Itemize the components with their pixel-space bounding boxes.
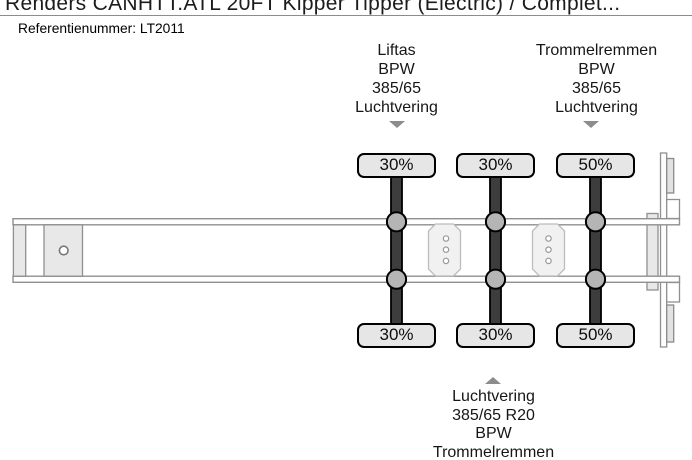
axle-bar-2 (490, 164, 501, 336)
annotation-line: Trommelremmen (497, 41, 692, 60)
chevron-down-icon (583, 121, 599, 128)
tire-load-badge-bottom-3: 50% (556, 323, 635, 348)
suspension-mount (387, 212, 406, 231)
annotation-line: BPW (497, 60, 692, 79)
axle-bar-3 (590, 164, 601, 336)
cross-member-2 (533, 224, 565, 276)
front-end-cap (13, 225, 25, 276)
suspension-mount (586, 212, 605, 231)
suspension-mount (586, 270, 605, 289)
chevron-up-icon (485, 377, 501, 384)
annotation-drum-brakes: Trommelremmen BPW 385/65 Luchtvering (497, 41, 692, 117)
rear-bracket-top (667, 200, 680, 219)
cross-member-1 (429, 224, 461, 276)
annotation-line: Liftas (297, 41, 497, 60)
chassis-rail-bottom (13, 276, 680, 282)
rear-lamp-top (667, 159, 674, 194)
chevron-down-icon (389, 121, 405, 128)
suspension-mount (486, 270, 505, 289)
axle-bar-1 (391, 164, 402, 336)
tire-load-badge-top-2: 30% (456, 153, 535, 178)
rear-bracket-bottom (667, 283, 680, 303)
rear-lamp-bottom (667, 305, 674, 342)
tire-load-badge-top-3: 50% (556, 153, 635, 178)
chassis-rail-top (13, 219, 680, 225)
tire-load-badge-bottom-2: 30% (456, 323, 535, 348)
annotation-line: Luchtvering (394, 388, 594, 407)
annotation-lift-axle: Liftas BPW 385/65 Luchtvering (297, 41, 497, 117)
annotation-line: BPW (394, 425, 594, 444)
annotation-line: 385/65 R20 (394, 407, 594, 426)
suspension-mount (486, 212, 505, 231)
annotation-line: BPW (297, 60, 497, 79)
annotation-line: Luchtvering (497, 98, 692, 117)
tire-load-badge-bottom-1: 30% (357, 323, 436, 348)
annotation-line: Trommelremmen (394, 444, 594, 460)
annotation-line: 385/65 (497, 79, 692, 98)
kingpin (59, 246, 68, 255)
annotation-line: 385/65 (297, 79, 497, 98)
suspension-mount (387, 270, 406, 289)
rear-light-bar (661, 153, 667, 347)
annotation-air-suspension: Luchtvering 385/65 R20 BPW Trommelremmen (394, 388, 594, 460)
vehicle-listing-diagram-page: Renders CANHTT.ATL 20FT Kipper Tipper (E… (0, 0, 692, 460)
tire-load-badge-top-1: 30% (357, 153, 436, 178)
annotation-line: Luchtvering (297, 98, 497, 117)
